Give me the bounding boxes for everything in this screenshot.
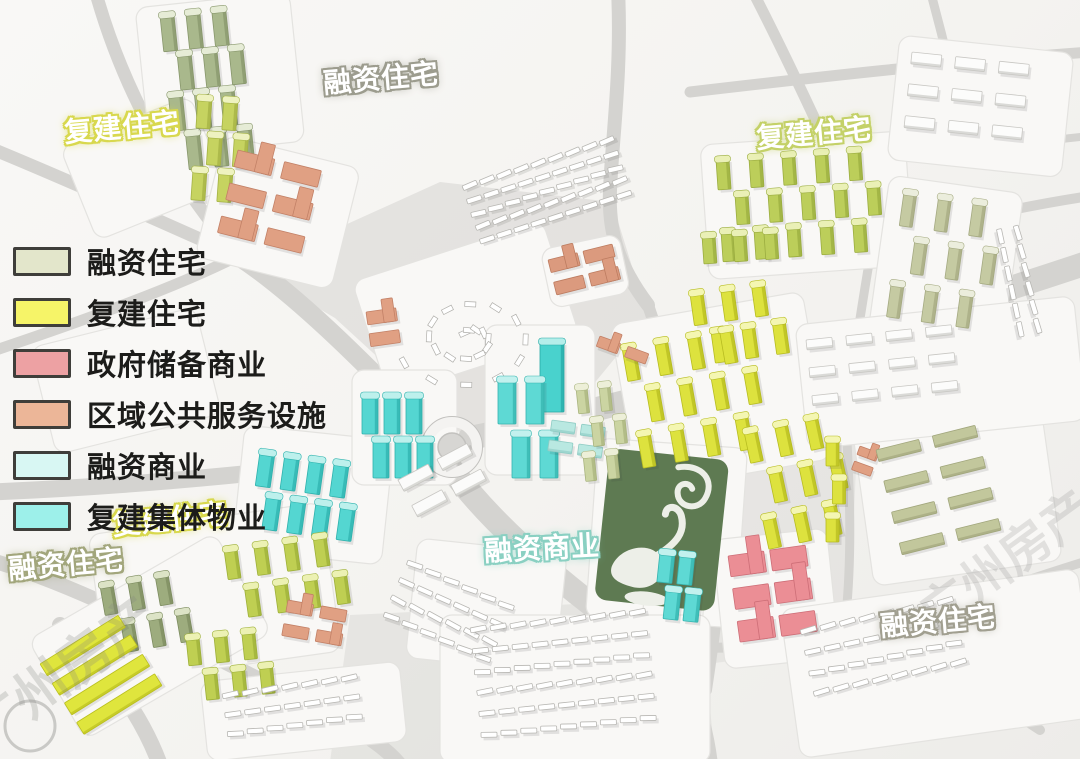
- legend-swatch-quyu-gonggong-fuwu: [13, 400, 71, 429]
- legend-item-fujian-zhuzhai: 复建住宅: [13, 291, 327, 333]
- northeast-white-slabs: [904, 52, 1032, 143]
- city-block-pad-20: [200, 661, 407, 759]
- legend-item-zhengfu-chubei-shangye: 政府储备商业: [13, 342, 327, 384]
- legend-swatch-rongzi-zhuzhai: [13, 247, 71, 276]
- legend-label-rongzi-shangye: 融资商业: [87, 444, 207, 486]
- legend: 融资住宅复建住宅政府储备商业区域公共服务设施融资商业复建集体物业: [13, 240, 327, 537]
- legend-item-rongzi-zhuzhai: 融资住宅: [13, 240, 327, 282]
- legend-label-fujian-jiti-wuye: 复建集体物业: [87, 495, 267, 537]
- legend-item-quyu-gonggong-fuwu: 区域公共服务设施: [13, 393, 327, 435]
- city-block-pad-21: [440, 615, 710, 759]
- legend-item-rongzi-shangye: 融资商业: [13, 444, 327, 486]
- legend-label-rongzi-zhuzhai: 融资住宅: [87, 240, 207, 282]
- legend-label-fujian-zhuzhai: 复建住宅: [87, 291, 207, 333]
- legend-swatch-fujian-zhuzhai: [13, 298, 71, 327]
- legend-label-quyu-gonggong-fuwu: 区域公共服务设施: [87, 393, 327, 435]
- legend-swatch-rongzi-shangye: [13, 451, 71, 480]
- legend-label-zhengfu-chubei-shangye: 政府储备商业: [87, 342, 267, 384]
- legend-item-fujian-jiti-wuye: 复建集体物业: [13, 495, 327, 537]
- urban-plan-map: 广州房产广州房产 融资住宅复建住宅政府储备商业区域公共服务设施融资商业复建集体物…: [0, 0, 1080, 759]
- legend-swatch-fujian-jiti-wuye: [13, 502, 71, 531]
- northeast-yellowgreen-towers-b: [700, 227, 781, 267]
- legend-swatch-zhengfu-chubei-shangye: [13, 349, 71, 378]
